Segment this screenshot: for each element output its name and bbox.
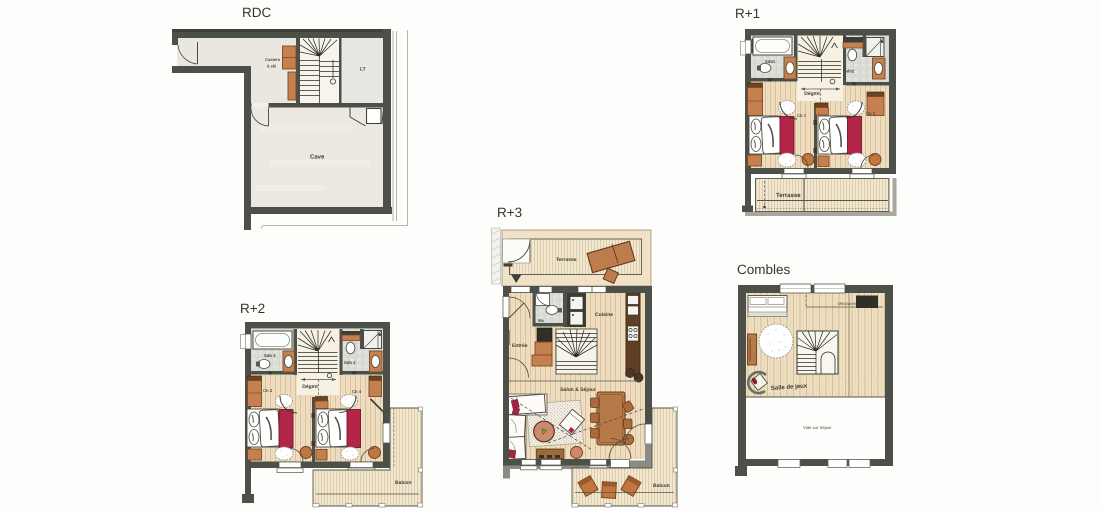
svg-text:Vide sur Séjour: Vide sur Séjour <box>803 425 832 430</box>
svg-text:Ch 2: Ch 2 <box>866 111 876 116</box>
svg-text:Terrasse: Terrasse <box>776 192 801 199</box>
svg-text:LT: LT <box>360 67 366 73</box>
svg-text:Casiers: Casiers <box>265 57 281 62</box>
svg-text:Ch 4: Ch 4 <box>352 389 362 394</box>
svg-text:Entrée: Entrée <box>512 343 528 349</box>
svg-text:Sdb2: Sdb2 <box>844 69 855 74</box>
svg-text:Cuisine: Cuisine <box>595 312 613 318</box>
svg-text:Wc: Wc <box>538 318 545 323</box>
svg-text:Salon & Séjour: Salon & Séjour <box>560 387 596 393</box>
svg-text:R+2: R+2 <box>240 301 265 316</box>
svg-text:à ski: à ski <box>267 64 276 69</box>
svg-text:Sdb 3: Sdb 3 <box>264 353 276 358</box>
svg-text:Combles: Combles <box>737 262 791 277</box>
svg-text:Cave: Cave <box>310 154 325 161</box>
svg-text:Ch 3: Ch 3 <box>263 388 273 393</box>
svg-text:R+3: R+3 <box>497 205 522 220</box>
svg-text:Sdb1: Sdb1 <box>765 59 776 64</box>
svg-text:Balcon: Balcon <box>653 483 670 489</box>
svg-text:Ch 1: Ch 1 <box>797 113 807 118</box>
svg-text:Terrasse: Terrasse <box>556 257 577 263</box>
svg-text:Mezzanine: Mezzanine <box>838 301 859 306</box>
svg-text:R+1: R+1 <box>735 6 760 21</box>
svg-text:Dégmt: Dégmt <box>804 91 820 97</box>
svg-text:RDC: RDC <box>242 5 271 20</box>
svg-text:Balcon: Balcon <box>395 480 412 486</box>
svg-text:Dégmt: Dégmt <box>302 384 318 390</box>
svg-text:Sdb 4: Sdb 4 <box>344 360 356 365</box>
